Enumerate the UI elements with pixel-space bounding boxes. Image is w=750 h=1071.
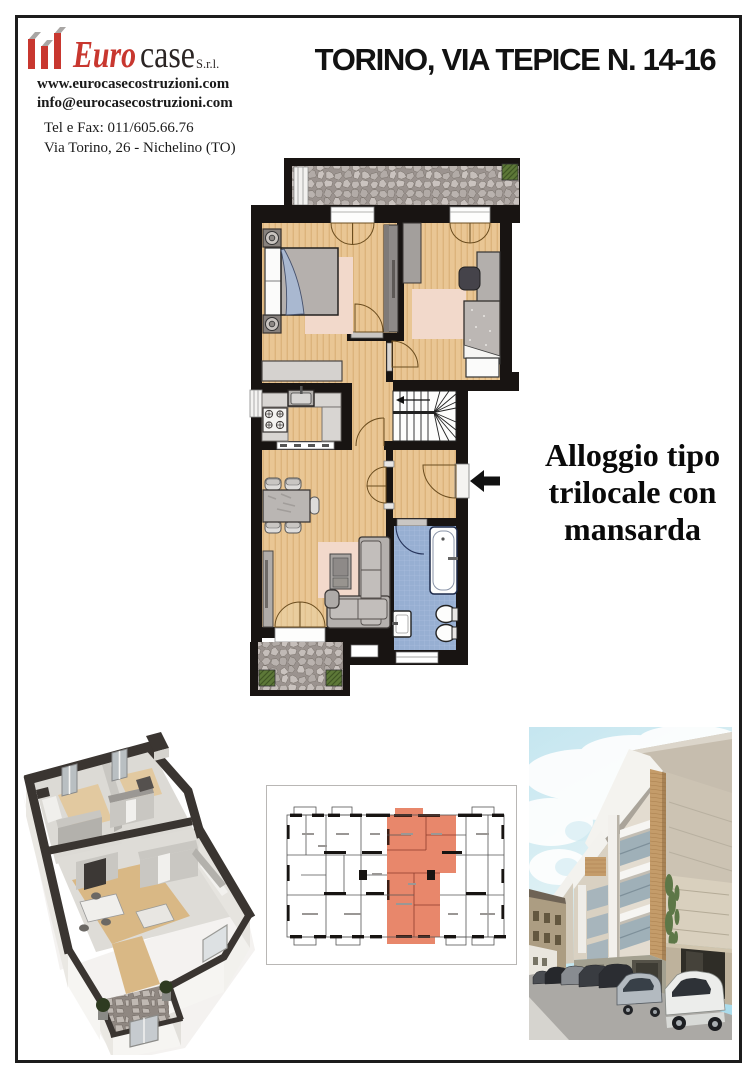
svg-text:case: case bbox=[140, 34, 195, 76]
svg-text:Euro: Euro bbox=[72, 34, 136, 76]
svg-text:S.r.l.: S.r.l. bbox=[196, 57, 219, 71]
